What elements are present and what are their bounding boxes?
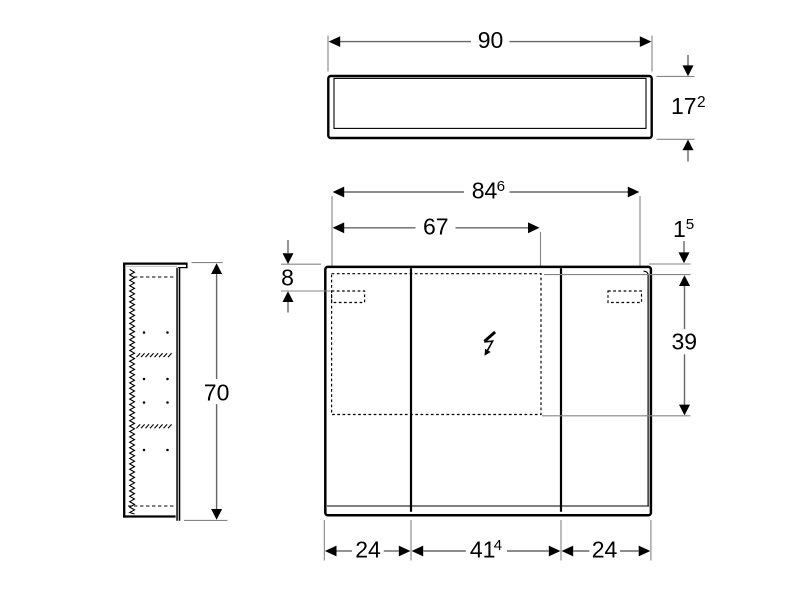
svg-text:8: 8 bbox=[281, 265, 294, 291]
svg-text:1: 1 bbox=[673, 216, 686, 242]
svg-text:4: 4 bbox=[494, 537, 502, 554]
svg-text:41: 41 bbox=[470, 537, 496, 563]
svg-text:84: 84 bbox=[472, 178, 498, 204]
svg-text:67: 67 bbox=[423, 214, 449, 240]
svg-text:39: 39 bbox=[672, 328, 698, 354]
svg-text:5: 5 bbox=[686, 216, 694, 233]
svg-text:17: 17 bbox=[671, 93, 697, 119]
svg-text:70: 70 bbox=[204, 379, 230, 405]
svg-text:6: 6 bbox=[497, 178, 505, 195]
svg-text:2: 2 bbox=[697, 94, 706, 111]
svg-text:24: 24 bbox=[592, 536, 618, 562]
svg-text:90: 90 bbox=[478, 27, 504, 53]
svg-text:24: 24 bbox=[355, 536, 381, 562]
